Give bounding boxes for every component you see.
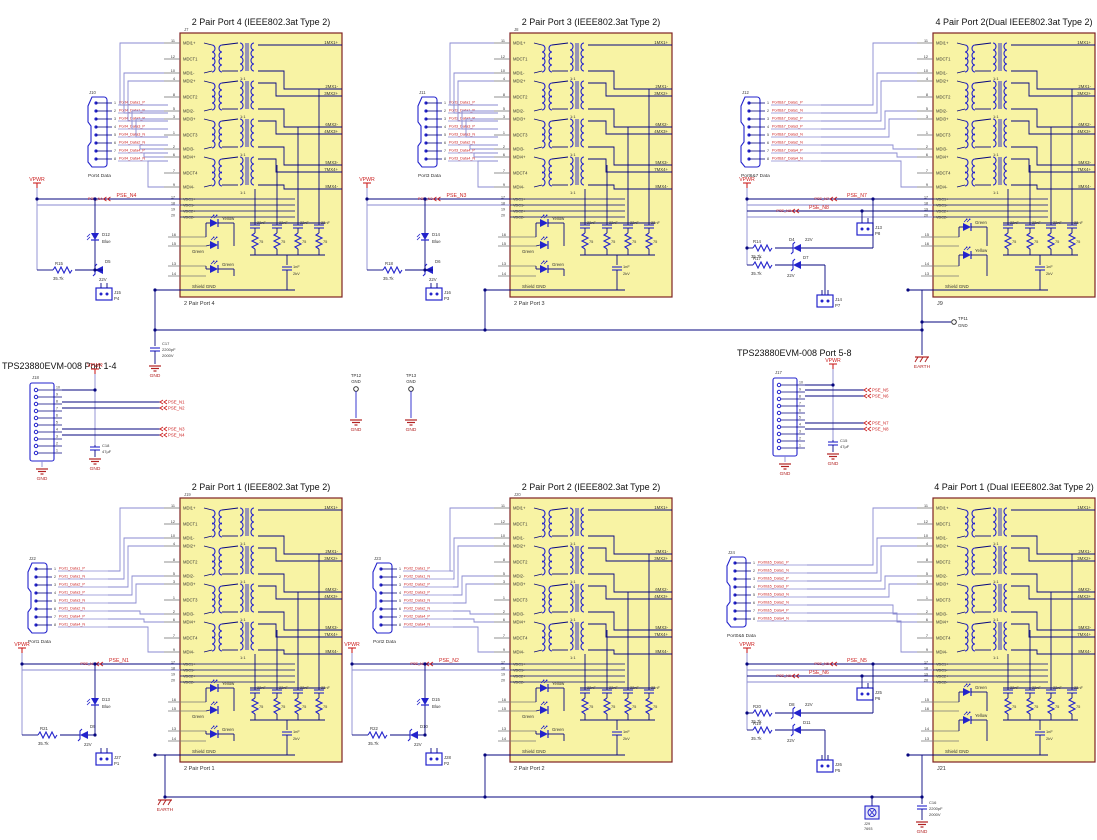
zener-icon	[80, 731, 88, 739]
cap-label: 22nF	[609, 685, 618, 690]
tps-module-left: TPS23880EVM-008 Port 1-4J1810987654321VP…	[2, 361, 185, 482]
led-icon	[421, 698, 429, 705]
pin-name: MDI4+	[513, 155, 526, 160]
led-color-label: Green	[222, 262, 235, 267]
part-ref: J14	[835, 297, 843, 302]
part-ref: D5	[105, 259, 111, 264]
conn-net-label: Port1_Data1_P	[59, 567, 85, 571]
resistor-icon	[753, 710, 772, 716]
part-value: 35.7k	[751, 736, 762, 741]
tp-ref: TP13	[406, 373, 417, 378]
pin-name: MDI2-	[183, 574, 195, 579]
wire	[450, 43, 498, 105]
zener-icon	[410, 731, 418, 739]
pin-name: MDCT3	[183, 133, 198, 138]
pin-name: VDC2+	[936, 675, 949, 679]
pin-number: 10	[799, 381, 803, 385]
cap-label: 2kV	[293, 736, 300, 741]
conn-net-label: Port6&7_Data4_N	[772, 157, 803, 161]
pin-number: 13	[172, 727, 176, 731]
pin-name: MDI3-	[183, 612, 195, 617]
led-color-label: Green	[975, 220, 988, 225]
part-ref: R15	[55, 261, 63, 266]
part-value: Blue	[432, 704, 441, 709]
pin-number: 5	[767, 133, 769, 137]
junction-dot	[423, 268, 426, 271]
pin-number: 6	[926, 618, 928, 622]
tps-module-right: TPS23880EVM-008 Port 5-8J1710987654321VP…	[737, 348, 889, 477]
conn-net-label: Port4_Data2_N	[119, 141, 145, 145]
mx-label: 5MX3-	[325, 160, 338, 165]
pin-number: 11	[924, 504, 928, 508]
ratio-label: 1:1	[240, 655, 246, 660]
pin-number: 13	[172, 262, 176, 266]
wire	[821, 73, 917, 113]
pin-number: 15	[925, 233, 929, 237]
wire	[807, 584, 917, 597]
wire	[453, 576, 494, 595]
ratio-label: 1:1	[993, 617, 999, 622]
cap-label: 22nF	[300, 685, 309, 690]
cap-label: 22nF	[1053, 220, 1062, 225]
conn-net-label: Port1_Data4_N	[59, 623, 85, 627]
res-label: 75	[1012, 704, 1016, 709]
cap-label: 22nF	[1010, 685, 1019, 690]
mx-label: 5MX3-	[1078, 625, 1091, 630]
pin-name: MDI4-	[183, 650, 195, 655]
block-footer: 2 Pair Port 1	[184, 766, 215, 772]
pin-number: 9	[503, 183, 505, 187]
pin-number: 5	[54, 599, 56, 603]
pin-number: 1	[926, 131, 928, 135]
mx-label: 1MX1+	[1077, 40, 1091, 45]
pin-name: MDI4-	[183, 185, 195, 190]
ratio-label: 1:1	[240, 617, 246, 622]
port-block-2: 4 Pair Port 2(Dual IEEE802.3at Type 2)J9…	[739, 17, 1095, 308]
block-title: 2 Pair Port 4 (IEEE802.3at Type 2)	[192, 17, 330, 27]
res-label: 75	[259, 704, 263, 709]
ratio-label: 1:1	[570, 579, 576, 584]
pin-number: 1	[503, 596, 505, 600]
wire	[821, 145, 917, 149]
conn-net-label: Port4_Data4_N	[119, 157, 145, 161]
part-value: P6	[875, 696, 881, 701]
pin-name: MDCT4	[513, 171, 528, 176]
net-flag: PSE_N8	[872, 427, 889, 432]
junction-dot	[483, 328, 486, 331]
res-label: 75	[1034, 704, 1038, 709]
pin-number: 8	[503, 93, 505, 97]
conn-net-label: Port1_Data1_N	[59, 575, 85, 579]
gnd-label: GND	[150, 373, 161, 379]
pin-number: 1	[114, 101, 116, 105]
net-label: PSE_N6	[809, 670, 829, 676]
vpwr-label: VPWR	[14, 642, 30, 648]
pin-name: MDI1+	[936, 506, 949, 511]
vpwr-label: VPWR	[739, 642, 755, 648]
net-flag: PSE_N1	[80, 662, 95, 666]
conn-net-label: Port1_Data3_P	[59, 591, 85, 595]
part-value: 2000V	[162, 353, 174, 358]
pin-name: MDI4-	[936, 185, 948, 190]
block-ref: J20	[514, 492, 521, 497]
pin-number: 4	[399, 591, 401, 595]
wire	[807, 538, 917, 573]
pin-name: MDI1-	[936, 71, 948, 76]
part-ref: D8	[789, 702, 795, 707]
part-value: Blue	[432, 239, 441, 244]
part-ref: C16	[929, 800, 937, 805]
pin-name: MDCT2	[513, 95, 528, 100]
net-arrow-icon	[864, 388, 871, 392]
led-color-label: Yellow	[975, 248, 988, 253]
pin-number: 15	[502, 242, 506, 246]
port-block-5: 4 Pair Port 1 (Dual IEEE802.3at Type 2)J…	[727, 482, 1095, 773]
connector-pin	[777, 432, 780, 435]
ratio-label: 1:1	[993, 114, 999, 119]
pin-number: 3	[926, 580, 928, 584]
jumper-icon	[857, 223, 873, 235]
ratio-label: 1:1	[993, 655, 999, 660]
pin-number: 3	[444, 117, 446, 121]
pin-number: 6	[753, 601, 755, 605]
tp-ref: TP11	[958, 316, 969, 321]
pin-number: 1	[173, 596, 175, 600]
connector-pin	[777, 404, 780, 407]
pin-number: 8	[56, 400, 58, 404]
connector-ref: J18	[32, 375, 40, 380]
pin-name: MDCT4	[936, 636, 951, 641]
net-flag: PSE_N7	[872, 421, 889, 426]
res-label: 75	[611, 704, 615, 709]
connector-body	[28, 563, 47, 633]
led-icon	[91, 233, 99, 240]
pin-number: 12	[924, 520, 928, 524]
mx-label: 3MX2+	[1077, 556, 1091, 561]
shape	[106, 758, 109, 761]
part-ref: R14	[753, 239, 761, 244]
shield-label: Shield GND	[192, 284, 217, 289]
pin-name: MDI3-	[513, 147, 525, 152]
ratio-label: 1:1	[240, 579, 246, 584]
cap-label: 22nF	[630, 220, 639, 225]
pin-number: 19	[171, 208, 175, 212]
pin-number: 11	[171, 504, 175, 508]
testpoint-icon	[409, 387, 414, 392]
pin-number: 6	[767, 141, 769, 145]
connector-label: Port2 Data	[373, 639, 396, 645]
pin-number: 14	[925, 727, 929, 731]
net-arrow-icon	[160, 433, 167, 437]
resistor-icon	[753, 727, 772, 733]
pin-name: MDCT1	[513, 522, 528, 527]
vpwr-label: VPWR	[87, 363, 103, 369]
part-ref: D11	[803, 720, 811, 725]
part-value: 35.7k	[383, 276, 394, 281]
pin-number: 7	[926, 169, 928, 173]
pin-number: 8	[753, 617, 755, 621]
pin-number: 7	[503, 169, 505, 173]
pin-number: 8	[399, 623, 401, 627]
res-label: 75	[653, 239, 657, 244]
connector-ref: J17	[775, 370, 783, 375]
pin-number: 10	[501, 534, 505, 538]
pin-number: 3	[753, 577, 755, 581]
ratio-label: 1:1	[240, 541, 246, 546]
res-label: 75	[632, 239, 636, 244]
connector-ref: J23	[374, 556, 382, 561]
pin-number: 7	[767, 149, 769, 153]
pin-number: 14	[502, 737, 506, 741]
conn-net-label: Port6&7_Data1_N	[772, 109, 803, 113]
pin-number: 6	[503, 153, 505, 157]
conn-net-label: Port2_Data4_P	[404, 615, 430, 619]
ratio-label: 1:1	[570, 114, 576, 119]
part-value: 2200pF	[929, 806, 943, 811]
jumper-icon	[426, 288, 442, 300]
mx-label: 1MX1+	[1077, 505, 1091, 510]
connector-pin	[34, 437, 37, 440]
pin-name: VDC1-	[513, 204, 525, 208]
vpwr-label: VPWR	[359, 177, 375, 183]
junction-dot	[831, 383, 834, 386]
mx-label: 6MX2-	[1078, 122, 1091, 127]
wire	[120, 43, 168, 105]
cap-label: 22nF	[609, 220, 618, 225]
mx-label: 6MX2-	[655, 122, 668, 127]
pin-number: 1	[753, 561, 755, 565]
pin-name: VDC2-	[936, 681, 948, 685]
led-color-label: Yellow	[552, 216, 565, 221]
pin-number: 3	[926, 115, 928, 119]
connector-pin	[777, 439, 780, 442]
pin-number: 6	[114, 141, 116, 145]
pin-number: 9	[173, 648, 175, 652]
pin-number: 8	[767, 157, 769, 161]
pin-number: 12	[501, 520, 505, 524]
res-label: 75	[323, 704, 327, 709]
part-ref: D14	[432, 232, 440, 237]
gnd-label: GND	[828, 461, 839, 467]
cap-label: 22nF	[1032, 220, 1041, 225]
pin-name: MDCT4	[936, 171, 951, 176]
cap-label: 22nF	[1053, 685, 1062, 690]
part-ref: J26	[835, 762, 843, 767]
pin-number: 7	[114, 149, 116, 153]
junction-dot	[93, 388, 96, 391]
pin-name: MDI3+	[513, 117, 526, 122]
mx-label: 4MX3+	[654, 129, 668, 134]
wire	[108, 538, 164, 579]
connector-pin	[34, 423, 37, 426]
cap-label: 22nF	[1074, 220, 1083, 225]
ratio-label: 1:1	[570, 190, 576, 195]
wire	[920, 357, 923, 362]
part-ref: C18	[102, 443, 110, 448]
conn-net-label: Port4_Data1_P	[119, 101, 145, 105]
pin-number: 4	[503, 77, 505, 81]
mx-label: 4MX3+	[1077, 129, 1091, 134]
pin-number: 3	[173, 115, 175, 119]
part-value: 22V	[84, 742, 92, 747]
pin-name: VDC2+	[936, 210, 949, 214]
cap-label: 2kV	[623, 271, 630, 276]
net-flag: PSE_N2	[410, 662, 425, 666]
conn-net-label: Port2_Data1_P	[404, 567, 430, 571]
part-ref: R22	[370, 726, 378, 731]
conn-net-label: Port2_Data3_N	[404, 599, 430, 603]
part-value: 22V	[414, 742, 422, 747]
pin-number: 4	[173, 77, 175, 81]
pin-number: 9	[56, 393, 58, 397]
zener-icon	[793, 261, 801, 269]
wire	[821, 43, 917, 105]
tp-ref: TP12	[351, 373, 362, 378]
connector-body	[741, 97, 760, 167]
led-color-label: Green	[552, 727, 565, 732]
connector-ref: J12	[742, 90, 750, 95]
led-color-label: Yellow	[222, 216, 235, 221]
wire	[453, 627, 494, 652]
part-ref: D7	[803, 255, 809, 260]
conn-net-label: Port2_Data1_N	[404, 575, 430, 579]
connector-ref: J10	[89, 90, 97, 95]
wire	[108, 611, 164, 614]
junction-dot	[163, 795, 166, 798]
pin-name: MDI2-	[936, 109, 948, 114]
wire	[108, 627, 164, 652]
pin-number: 6	[399, 607, 401, 611]
cap-label: 22nF	[651, 685, 660, 690]
pin-number: 15	[172, 707, 176, 711]
conn-net-label: Port1_Data3_N	[59, 599, 85, 603]
pin-number: 8	[444, 157, 446, 161]
led-icon	[421, 233, 429, 240]
pin-name: MDCT4	[183, 171, 198, 176]
connector-label: Port4 Data	[88, 173, 111, 179]
res-label: 75	[281, 704, 285, 709]
pin-name: MDCT1	[936, 522, 951, 527]
pin-number: 2	[503, 145, 505, 149]
tp-label: GND	[351, 379, 361, 384]
gnd-label: GND	[406, 427, 417, 433]
pin-number: 1	[767, 101, 769, 105]
pin-number: 8	[114, 157, 116, 161]
net-arrow-icon	[160, 406, 167, 410]
resistor-icon	[53, 267, 72, 273]
mx-label: 7MX4+	[654, 632, 668, 637]
pin-number: 16	[172, 233, 176, 237]
resistor-icon	[753, 262, 772, 268]
pin-name: VDC2-	[513, 216, 525, 220]
block-footer: 2 Pair Port 3	[514, 301, 545, 307]
pin-number: 9	[503, 648, 505, 652]
res-label: 75	[302, 239, 306, 244]
junction-dot	[93, 733, 96, 736]
pin-number: 4	[444, 125, 446, 129]
mx-label: 1MX1+	[324, 40, 338, 45]
part-ref: D6	[435, 259, 441, 264]
pin-number: 5	[444, 133, 446, 137]
pin-number: 4	[926, 77, 928, 81]
schematic-page: 2 Pair Port 4 (IEEE802.3at Type 2)J72 Pa…	[0, 0, 1097, 840]
shape	[436, 758, 439, 761]
resistor-icon	[368, 732, 387, 738]
gnd-label: GND	[917, 829, 928, 835]
pin-name: MDCT3	[513, 598, 528, 603]
shape	[821, 765, 824, 768]
part-ref: J16	[444, 290, 452, 295]
pin-name: VDC2+	[183, 675, 196, 679]
block-ref: J7	[184, 27, 189, 32]
pin-name: MDI2+	[936, 79, 949, 84]
conn-net-label: Port6&7_Data3_N	[772, 133, 803, 137]
pin-name: MDI2+	[513, 79, 526, 84]
vpwr-label: VPWR	[825, 358, 841, 364]
pin-number: 2	[399, 575, 401, 579]
pin-number: 12	[171, 55, 175, 59]
pin-number: 2	[114, 109, 116, 113]
ratio-label: 1:1	[993, 541, 999, 546]
pin-name: MDI4+	[183, 155, 196, 160]
ratio-label: 1:1	[993, 190, 999, 195]
connector-pin	[34, 430, 37, 433]
mx-label: 2MX1-	[325, 84, 338, 89]
part-value: P2	[444, 761, 450, 766]
mx-label: 3MX2+	[654, 91, 668, 96]
part-value: 7693	[864, 827, 872, 831]
pin-name: MDI1-	[936, 536, 948, 541]
conn-net-label: Port3_Data2_N	[449, 141, 475, 145]
pin-name: MDI1-	[513, 71, 525, 76]
pin-number: 3	[503, 115, 505, 119]
pin-number: 13	[925, 737, 929, 741]
pin-name: MDI2+	[183, 544, 196, 549]
junction-dot	[920, 328, 923, 331]
block-title: 4 Pair Port 2(Dual IEEE802.3at Type 2)	[936, 17, 1093, 27]
conn-net-label: Port4_Data3_N	[119, 133, 145, 137]
pin-name: MDI4-	[513, 185, 525, 190]
shape	[430, 293, 433, 296]
mx-label: 1MX1+	[324, 505, 338, 510]
part-value: 22V	[805, 237, 813, 242]
pin-number: 6	[173, 153, 175, 157]
jumper-icon	[857, 688, 873, 700]
mx-label: 2MX1-	[1078, 549, 1091, 554]
cap-label: 2kV	[293, 271, 300, 276]
net-label: PSE_N7	[847, 193, 867, 199]
net-flag: PSE_N1	[168, 400, 185, 405]
pin-number: 7	[753, 609, 755, 613]
part-ref: R18	[385, 261, 393, 266]
wire	[168, 800, 171, 805]
block-title: 2 Pair Port 2 (IEEE802.3at Type 2)	[522, 482, 660, 492]
part-value: 22V	[429, 277, 437, 282]
junction-dot	[423, 662, 426, 665]
pin-number: 5	[503, 572, 505, 576]
junction-dot	[860, 209, 863, 212]
led-color-label: Yellow	[975, 713, 988, 718]
pin-name: VDC1+	[936, 663, 949, 667]
pin-name: VDC2+	[183, 210, 196, 214]
ratio-label: 1:1	[993, 579, 999, 584]
part-ref: D4	[789, 237, 795, 242]
vpwr-label: VPWR	[739, 177, 755, 183]
pin-name: MDCT2	[513, 560, 528, 565]
junction-dot	[860, 674, 863, 677]
pin-number: 10	[171, 534, 175, 538]
pin-number: 1	[54, 567, 56, 571]
